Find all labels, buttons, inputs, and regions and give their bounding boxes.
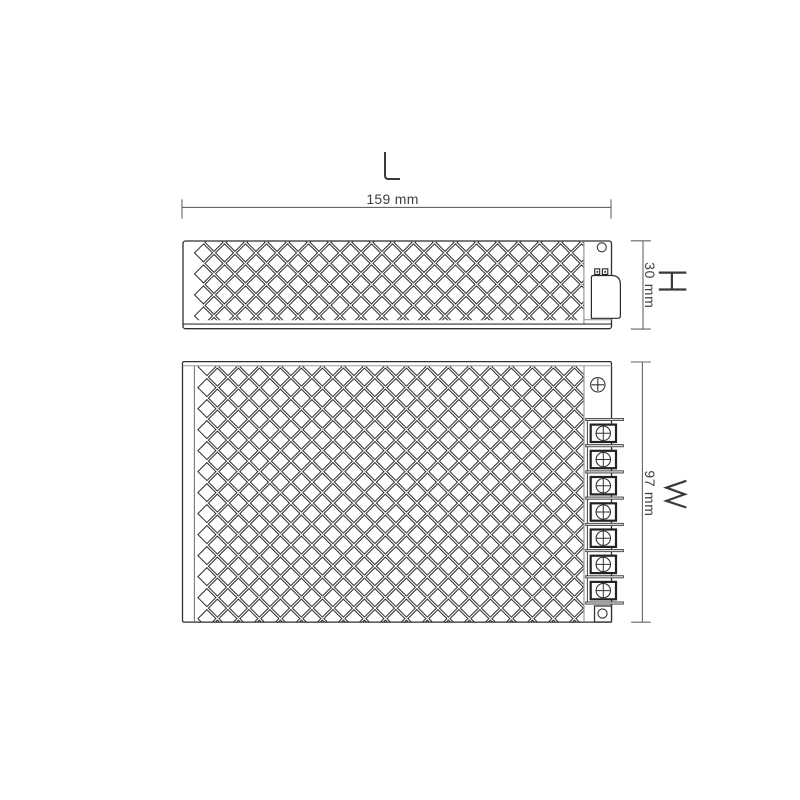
svg-text:159 mm: 159 mm [366,191,418,207]
svg-text:30 mm: 30 mm [642,262,658,308]
svg-text:97 mm: 97 mm [642,470,658,516]
